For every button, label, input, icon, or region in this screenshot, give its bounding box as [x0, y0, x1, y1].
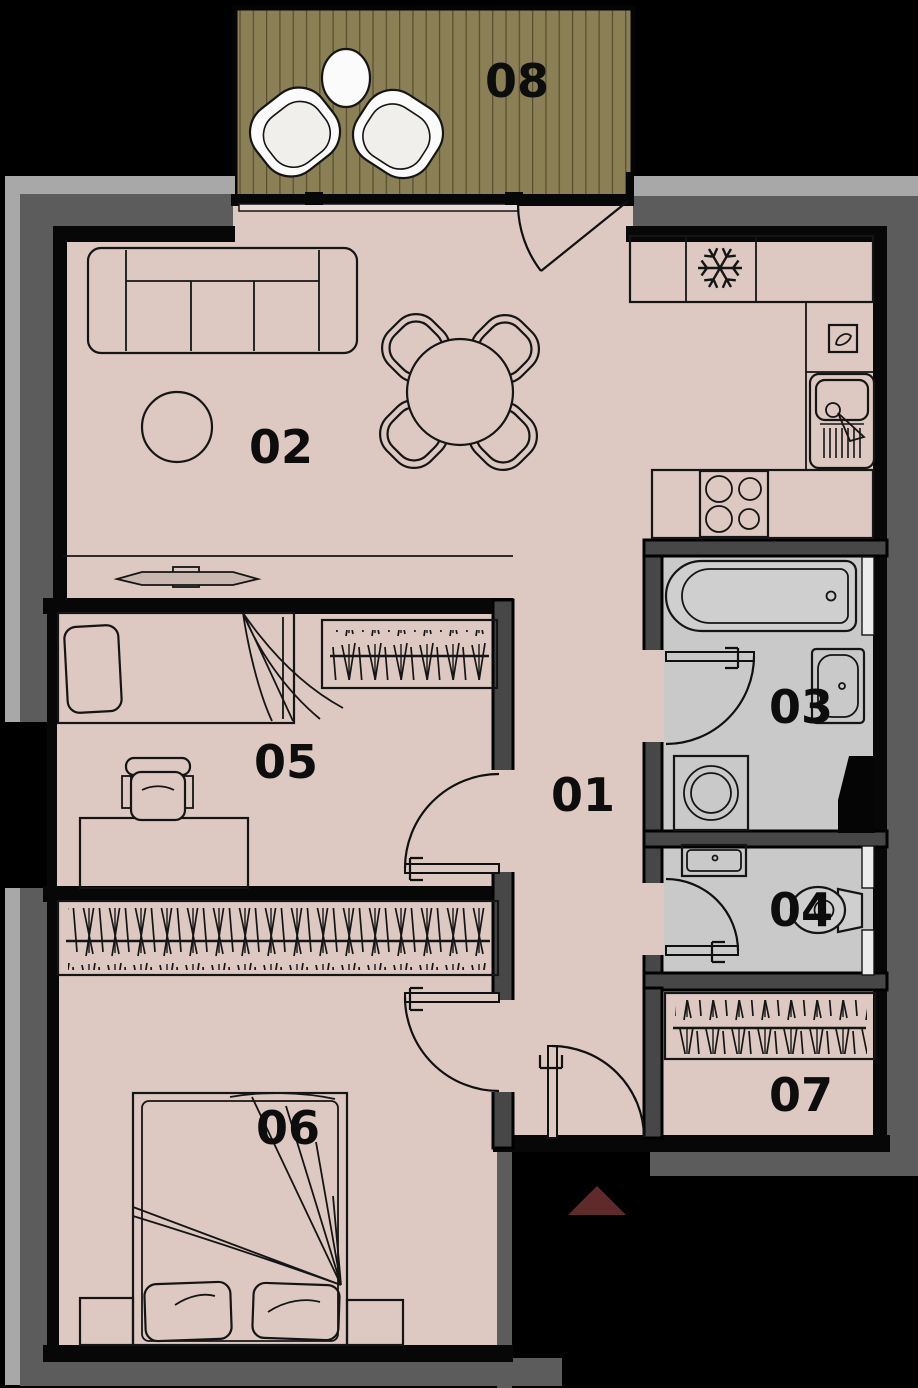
balcony-deck [235, 8, 633, 196]
wall-kitchen-bath [644, 540, 887, 556]
balcony-table [322, 49, 370, 107]
label-bedroom-06: 06 [256, 1101, 320, 1155]
label-balcony: 08 [485, 54, 549, 108]
sofa [88, 248, 357, 353]
label-bedroom-05: 05 [254, 735, 318, 789]
wardrobe-06 [58, 901, 498, 975]
label-toilet: 04 [769, 883, 833, 937]
wall-wc-storage [644, 973, 887, 990]
storage-07 [665, 993, 875, 1059]
label-hallway: 01 [551, 768, 615, 822]
label-storage: 07 [769, 1068, 833, 1122]
wardrobe-05 [322, 620, 497, 688]
wall-hall-storage [644, 988, 662, 1138]
wall-bath-wc [644, 831, 887, 847]
dining-table [407, 339, 513, 445]
label-bathroom: 03 [769, 680, 833, 734]
tv [117, 572, 258, 585]
floor-plan-svg: 01 02 03 04 05 06 07 08 [0, 0, 918, 1388]
bathtub [666, 561, 856, 631]
office-chair [122, 758, 193, 820]
label-living-room: 02 [249, 420, 313, 474]
floor-plan-canvas: 01 02 03 04 05 06 07 08 [0, 0, 918, 1388]
